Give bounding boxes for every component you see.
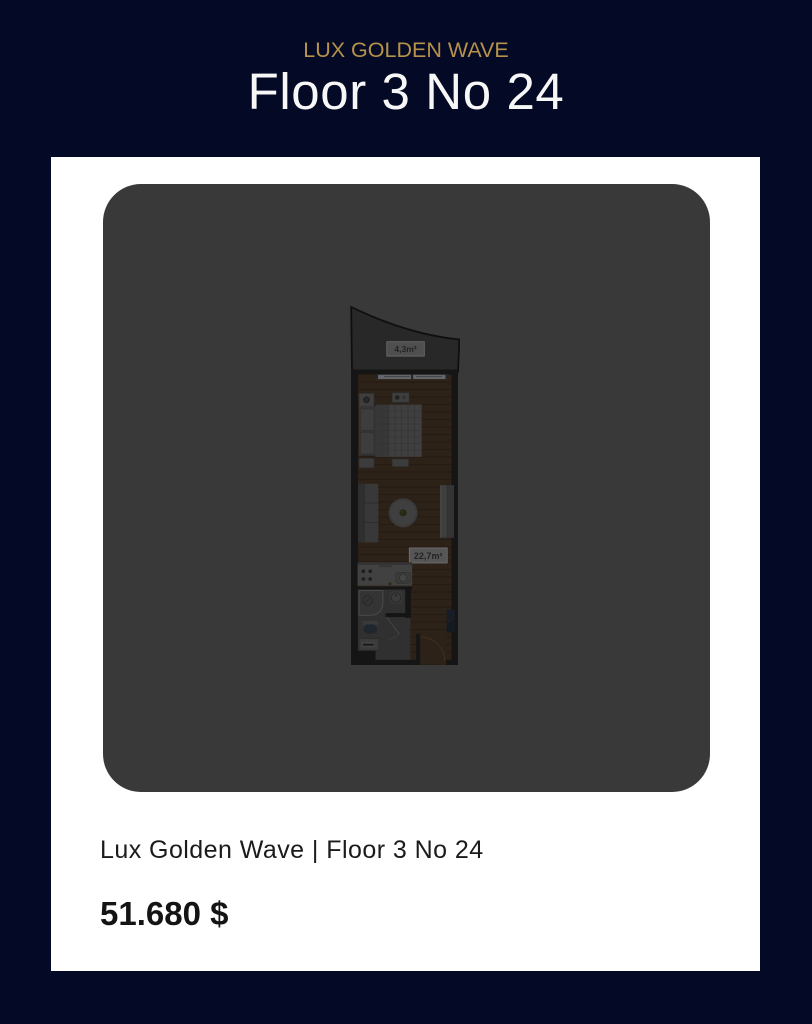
svg-text:4,3m²: 4,3m² bbox=[394, 344, 416, 354]
svg-text:22,7m²: 22,7m² bbox=[414, 551, 443, 561]
